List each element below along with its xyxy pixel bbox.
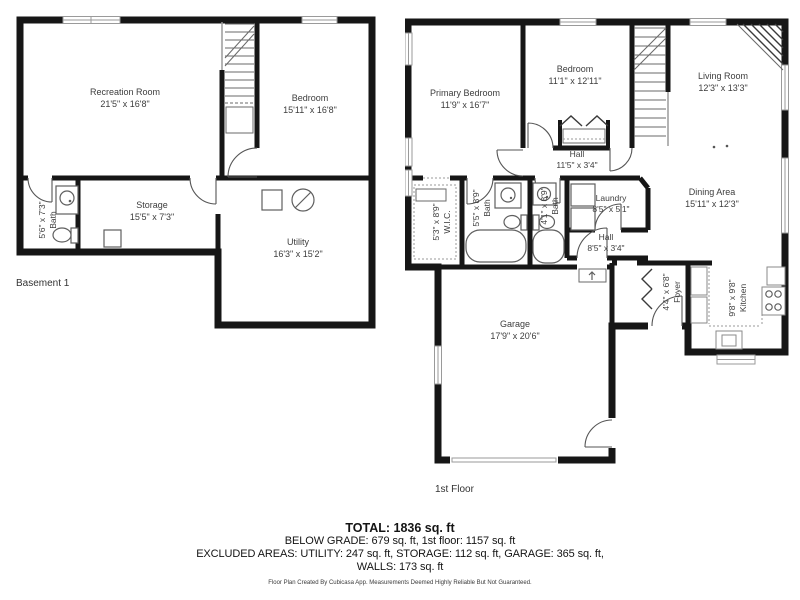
furnace-icon: [262, 190, 282, 210]
room-label-utility-dims: 16'3" x 15'2": [273, 249, 322, 259]
room-label-laundry-name: Laundry: [596, 193, 627, 203]
toilet-icon: [504, 215, 527, 230]
room-label-primary-bedroom-dims: 11'9" x 16'7": [441, 100, 490, 110]
first-floor-plan: Primary Bedroom 11'9" x 16'7" Bedroom 11…: [405, 8, 795, 508]
room-label-hall-upper-dims: 11'5" x 3'4": [556, 160, 597, 170]
walls-area-text: WALLS: 173 sq. ft: [0, 561, 800, 574]
room-label-garage-dims: 17'9" x 20'6": [490, 331, 539, 341]
room-label-living-dims: 12'3" x 13'3": [698, 83, 747, 93]
basement-floor-label: Basement 1: [16, 278, 70, 289]
bathtub-icon: [466, 230, 526, 262]
room-label-storage-dims: 15'5" x 7'3": [130, 212, 174, 222]
below-grade-text: BELOW GRADE: 679 sq. ft, 1st floor: 1157…: [0, 535, 800, 548]
window: [782, 158, 789, 233]
excluded-areas-text: EXCLUDED AREAS: UTILITY: 247 sq. ft, STO…: [0, 548, 800, 561]
storage-box-icon: [104, 230, 121, 247]
first-floor-label: 1st Floor: [435, 484, 475, 495]
toilet-icon: [53, 228, 78, 243]
room-label-kitchen-dims: 9'8" x 9'8": [727, 279, 737, 316]
garage-door: [450, 457, 558, 464]
sink-icon: [495, 183, 521, 208]
window: [435, 346, 442, 384]
room-label-recreation-name: Recreation Room: [90, 87, 160, 97]
window: [690, 19, 726, 26]
disclaimer-text: Floor Plan Created By Cubicasa App. Meas…: [0, 580, 800, 586]
window: [405, 33, 412, 65]
room-label-recreation-dims: 21'5" x 16'8": [100, 99, 149, 109]
room-label-garage-name: Garage: [500, 319, 530, 329]
room-label-bath2-dims: 4'1" x 8'9": [539, 187, 549, 224]
room-label-bsmt-bedroom-dims: 15'11" x 16'8": [283, 105, 337, 115]
room-label-utility-name: Utility: [287, 237, 309, 247]
summary-footer: TOTAL: 1836 sq. ft BELOW GRADE: 679 sq. …: [0, 521, 800, 586]
kitchen-sink-icon: [716, 331, 742, 349]
room-label-foyer-name: Foyer: [672, 281, 682, 303]
room-label-primary-bedroom-name: Primary Bedroom: [430, 88, 500, 98]
room-label-bedroom-dims: 11'1" x 12'11": [548, 76, 601, 86]
window: [782, 65, 789, 110]
window: [405, 170, 412, 196]
room-label-hall-lower-dims: 8'5" x 3'4": [587, 243, 624, 253]
sink-icon: [56, 186, 78, 214]
front-door-gap: [648, 323, 682, 330]
window: [405, 138, 412, 166]
garage-side-door-gap: [609, 418, 616, 448]
room-label-bsmt-bath-name: Bath: [48, 211, 58, 229]
room-label-bedroom-name: Bedroom: [557, 64, 594, 74]
room-label-bsmt-bedroom-name: Bedroom: [292, 93, 329, 103]
room-label-living-name: Living Room: [698, 71, 748, 81]
window: [560, 19, 596, 26]
basement-outer-walls: [20, 20, 372, 325]
window: [63, 17, 120, 24]
total-area-text: TOTAL: 1836 sq. ft: [0, 521, 800, 535]
room-label-wic-name: W.I.C.: [442, 210, 452, 233]
floorplan-page: Recreation Room 21'5" x 16'8" Bedroom 15…: [0, 0, 800, 600]
window: [302, 17, 337, 24]
room-label-dining-dims: 15'11" x 12'3": [685, 199, 739, 209]
kitchen-porch-step: [717, 355, 755, 364]
room-label-storage-name: Storage: [136, 200, 168, 210]
room-label-bath1-dims: 5'5" x 8'9": [471, 189, 481, 226]
room-label-hall-upper-name: Hall: [570, 149, 585, 159]
room-label-bath2-name: Bath: [550, 197, 560, 215]
room-label-kitchen-name: Kitchen: [738, 284, 748, 313]
room-label-bsmt-bath-dims: 5'6" x 7'3": [37, 201, 47, 238]
room-label-hall-lower-name: Hall: [599, 232, 614, 242]
basement-plan: Recreation Room 21'5" x 16'8" Bedroom 15…: [10, 8, 390, 330]
stove-icon: [762, 287, 785, 315]
room-label-wic-dims: 5'3" x 8'9": [431, 203, 441, 240]
room-label-laundry-dims: 8'5" x 5'1": [592, 204, 629, 214]
room-label-bath1-name: Bath: [482, 199, 492, 217]
room-label-dining-name: Dining Area: [689, 187, 736, 197]
bathtub-icon: [533, 230, 564, 263]
room-label-foyer-dims: 4'4" x 6'8": [661, 273, 671, 310]
